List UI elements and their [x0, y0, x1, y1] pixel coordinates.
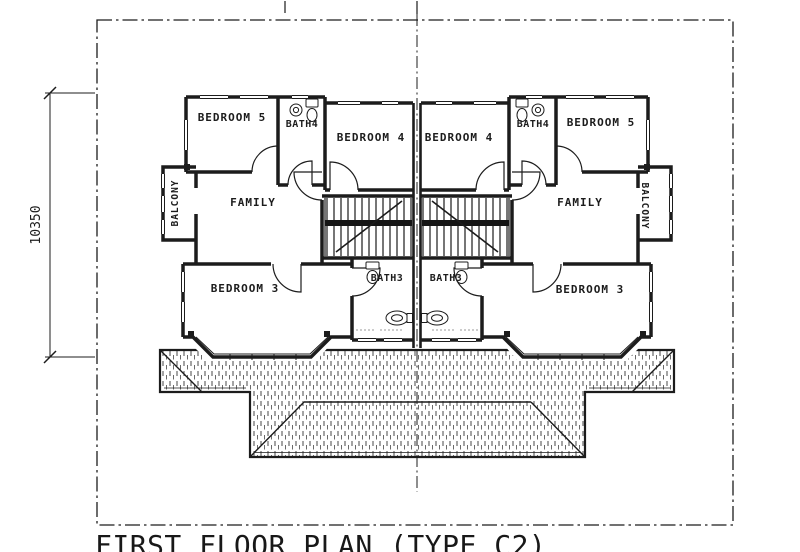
room-label-bath3-left: BATH3	[371, 273, 404, 284]
room-label-family-right: FAMILY	[557, 196, 603, 209]
floor-plan-svg: 10350 BEDROOM 5 BATH4 BEDROOM 4 BEDROOM …	[0, 0, 800, 552]
drawing-title: FIRST FLOOR PLAN (TYPE C2)	[95, 529, 546, 552]
room-label-balcony-right: BALCONY	[639, 182, 650, 229]
room-label-bath4-left: BATH4	[286, 119, 319, 130]
room-label-family-left: FAMILY	[230, 196, 276, 209]
room-label-bedroom5-left: BEDROOM 5	[198, 111, 267, 124]
room-label-balcony-left: BALCONY	[170, 179, 181, 226]
room-label-bath4-right: BATH4	[517, 119, 550, 130]
room-label-bedroom5-right: BEDROOM 5	[567, 116, 636, 129]
room-label-bedroom3-right: BEDROOM 3	[556, 283, 625, 296]
floor-plan-drawing: 10350 BEDROOM 5 BATH4 BEDROOM 4 BEDROOM …	[0, 0, 800, 552]
room-label-bedroom3-left: BEDROOM 3	[211, 282, 280, 295]
room-label-bedroom4-right: BEDROOM 4	[425, 131, 494, 144]
dimension-label: 10350	[29, 205, 44, 244]
room-label-bath3-right: BATH3	[430, 273, 463, 284]
room-label-bedroom4-left: BEDROOM 4	[337, 131, 406, 144]
